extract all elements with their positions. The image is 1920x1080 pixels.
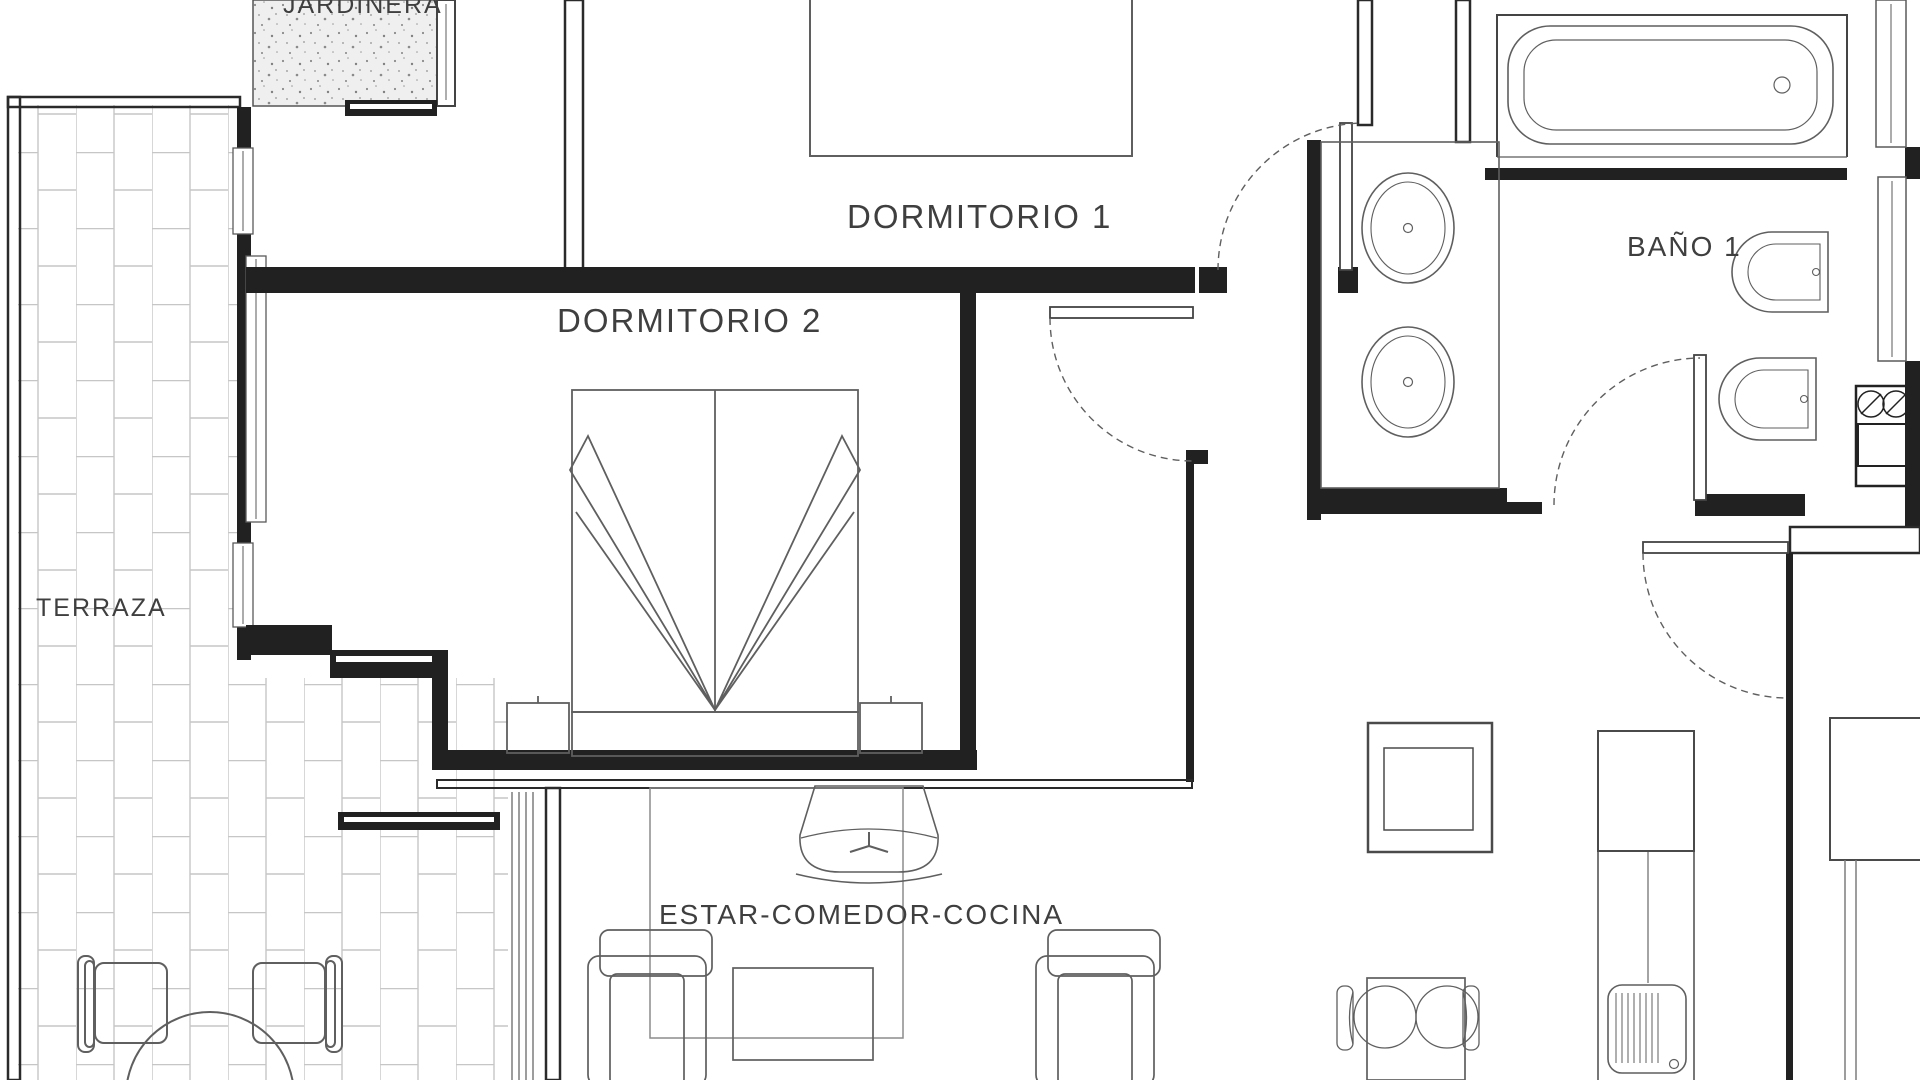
dormitorio1-room: DORMITORIO 1	[810, 0, 1132, 235]
floor-plan-drawing: TERRAZA JARDINERA	[0, 0, 1920, 1080]
wall	[1307, 488, 1507, 514]
wall	[1695, 494, 1805, 516]
estar-room: ESTAR-COMEDOR-COCINA	[588, 786, 1160, 1080]
double-bed-icon	[570, 390, 860, 756]
wall	[1199, 267, 1227, 293]
bathtub-icon	[1508, 26, 1833, 144]
door-swing-icon	[1554, 355, 1706, 505]
wall	[1790, 527, 1920, 553]
coffee-table-icon	[733, 968, 873, 1060]
wall	[246, 267, 1195, 293]
wall	[1507, 502, 1542, 514]
armchair-icon	[1036, 930, 1160, 1080]
wall	[960, 293, 976, 752]
dormitorio2-label: DORMITORIO 2	[557, 302, 822, 339]
jardinera-label: JARDINERA	[283, 0, 443, 19]
wall	[1307, 140, 1321, 520]
dining-chair-icon	[1337, 986, 1353, 1050]
terraza-label: TERRAZA	[36, 594, 167, 622]
window-sill-icon	[330, 650, 446, 678]
wall	[1497, 15, 1847, 157]
wall	[565, 0, 583, 270]
kitchen-appliance-icon	[1830, 718, 1920, 860]
wall	[1905, 147, 1920, 179]
toilet-icon	[1732, 232, 1828, 312]
tile-paving-icon	[240, 678, 508, 1080]
jardinera-planter: JARDINERA	[253, 0, 455, 116]
nightstand-icon	[860, 696, 922, 753]
tile-paving-icon	[18, 105, 240, 1080]
fireplace-stove-icon	[796, 786, 942, 883]
sliding-window-icon	[512, 792, 533, 1080]
wall	[432, 650, 448, 766]
terraza-room: TERRAZA	[18, 105, 508, 1080]
bidet-icon	[1719, 358, 1816, 440]
wall	[1786, 553, 1793, 1080]
door-swing-icon	[1050, 307, 1193, 461]
cocina-area	[1337, 718, 1920, 1080]
wall	[1186, 452, 1194, 782]
wall	[1358, 0, 1372, 125]
wall	[246, 625, 332, 655]
doors	[1050, 123, 1788, 698]
dining-table-icon	[1337, 978, 1479, 1080]
door-swing-icon	[1643, 542, 1788, 698]
single-bed-icon	[810, 0, 1132, 156]
sink-oval-icon	[1362, 173, 1454, 283]
dormitorio1-label: DORMITORIO 1	[847, 198, 1112, 235]
sink-oval-icon	[1362, 327, 1454, 437]
dining-chair-icon	[1416, 986, 1478, 1048]
square-table-icon	[1368, 723, 1492, 852]
floor-plan-canvas: TERRAZA JARDINERA	[0, 0, 1920, 1080]
bano1-room: BAÑO 1	[1321, 26, 1909, 488]
wall	[546, 788, 560, 1080]
dormitorio2-room: DORMITORIO 2	[507, 302, 922, 756]
wall	[1456, 0, 1470, 142]
window-icon	[1876, 0, 1906, 361]
nightstand-icon	[507, 696, 569, 753]
washing-machine-icon	[1856, 386, 1909, 486]
door-swing-icon	[1218, 123, 1362, 270]
wall	[1485, 168, 1847, 180]
bano1-label: BAÑO 1	[1627, 231, 1742, 262]
estar-label: ESTAR-COMEDOR-COCINA	[659, 899, 1064, 930]
kitchen-sink-icon	[1608, 985, 1686, 1073]
dining-chair-icon	[1354, 986, 1416, 1048]
